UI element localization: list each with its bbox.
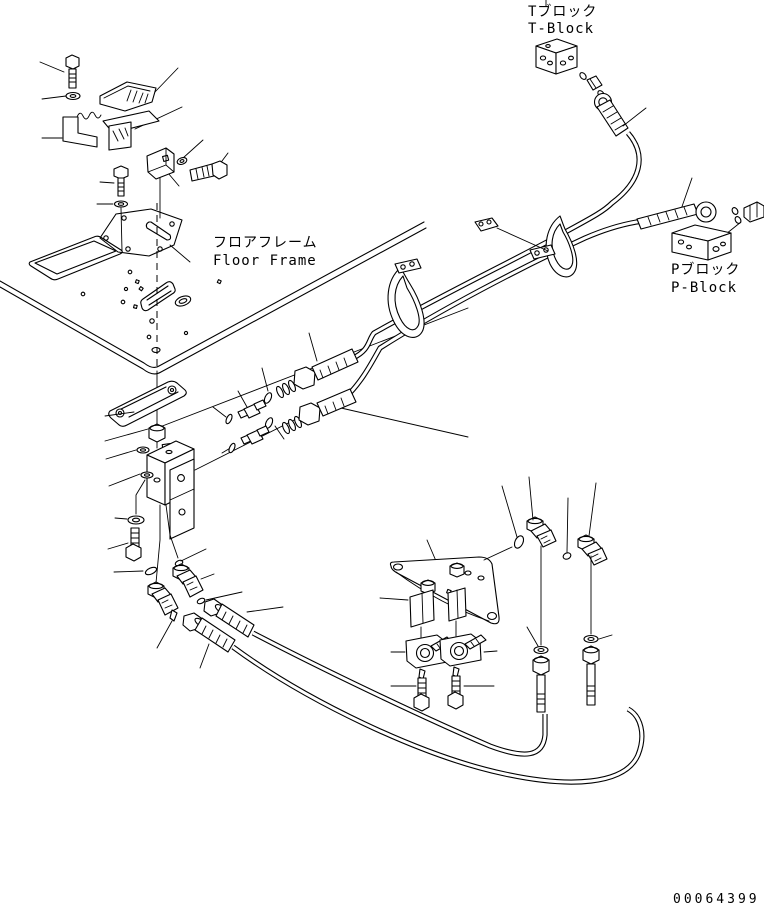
floor-frame-label-en: Floor Frame (213, 253, 317, 269)
parts-diagram: Tブロック T-Block フロアフレーム Floor Frame Pブロック … (0, 0, 764, 907)
p-block-label-jp: Pブロック (671, 261, 740, 278)
t-block-label-jp: Tブロック (528, 3, 597, 20)
p-block-label-en: P-Block (671, 280, 737, 296)
floor-frame-label-jp: フロアフレーム (213, 235, 318, 251)
parts-diagram-page: Tブロック T-Block フロアフレーム Floor Frame Pブロック … (0, 0, 764, 907)
pedal-washer (66, 93, 80, 100)
t-block-label-en: T-Block (528, 21, 594, 37)
t-block-body (536, 39, 577, 74)
drawing-number: 00064399 (673, 892, 760, 907)
